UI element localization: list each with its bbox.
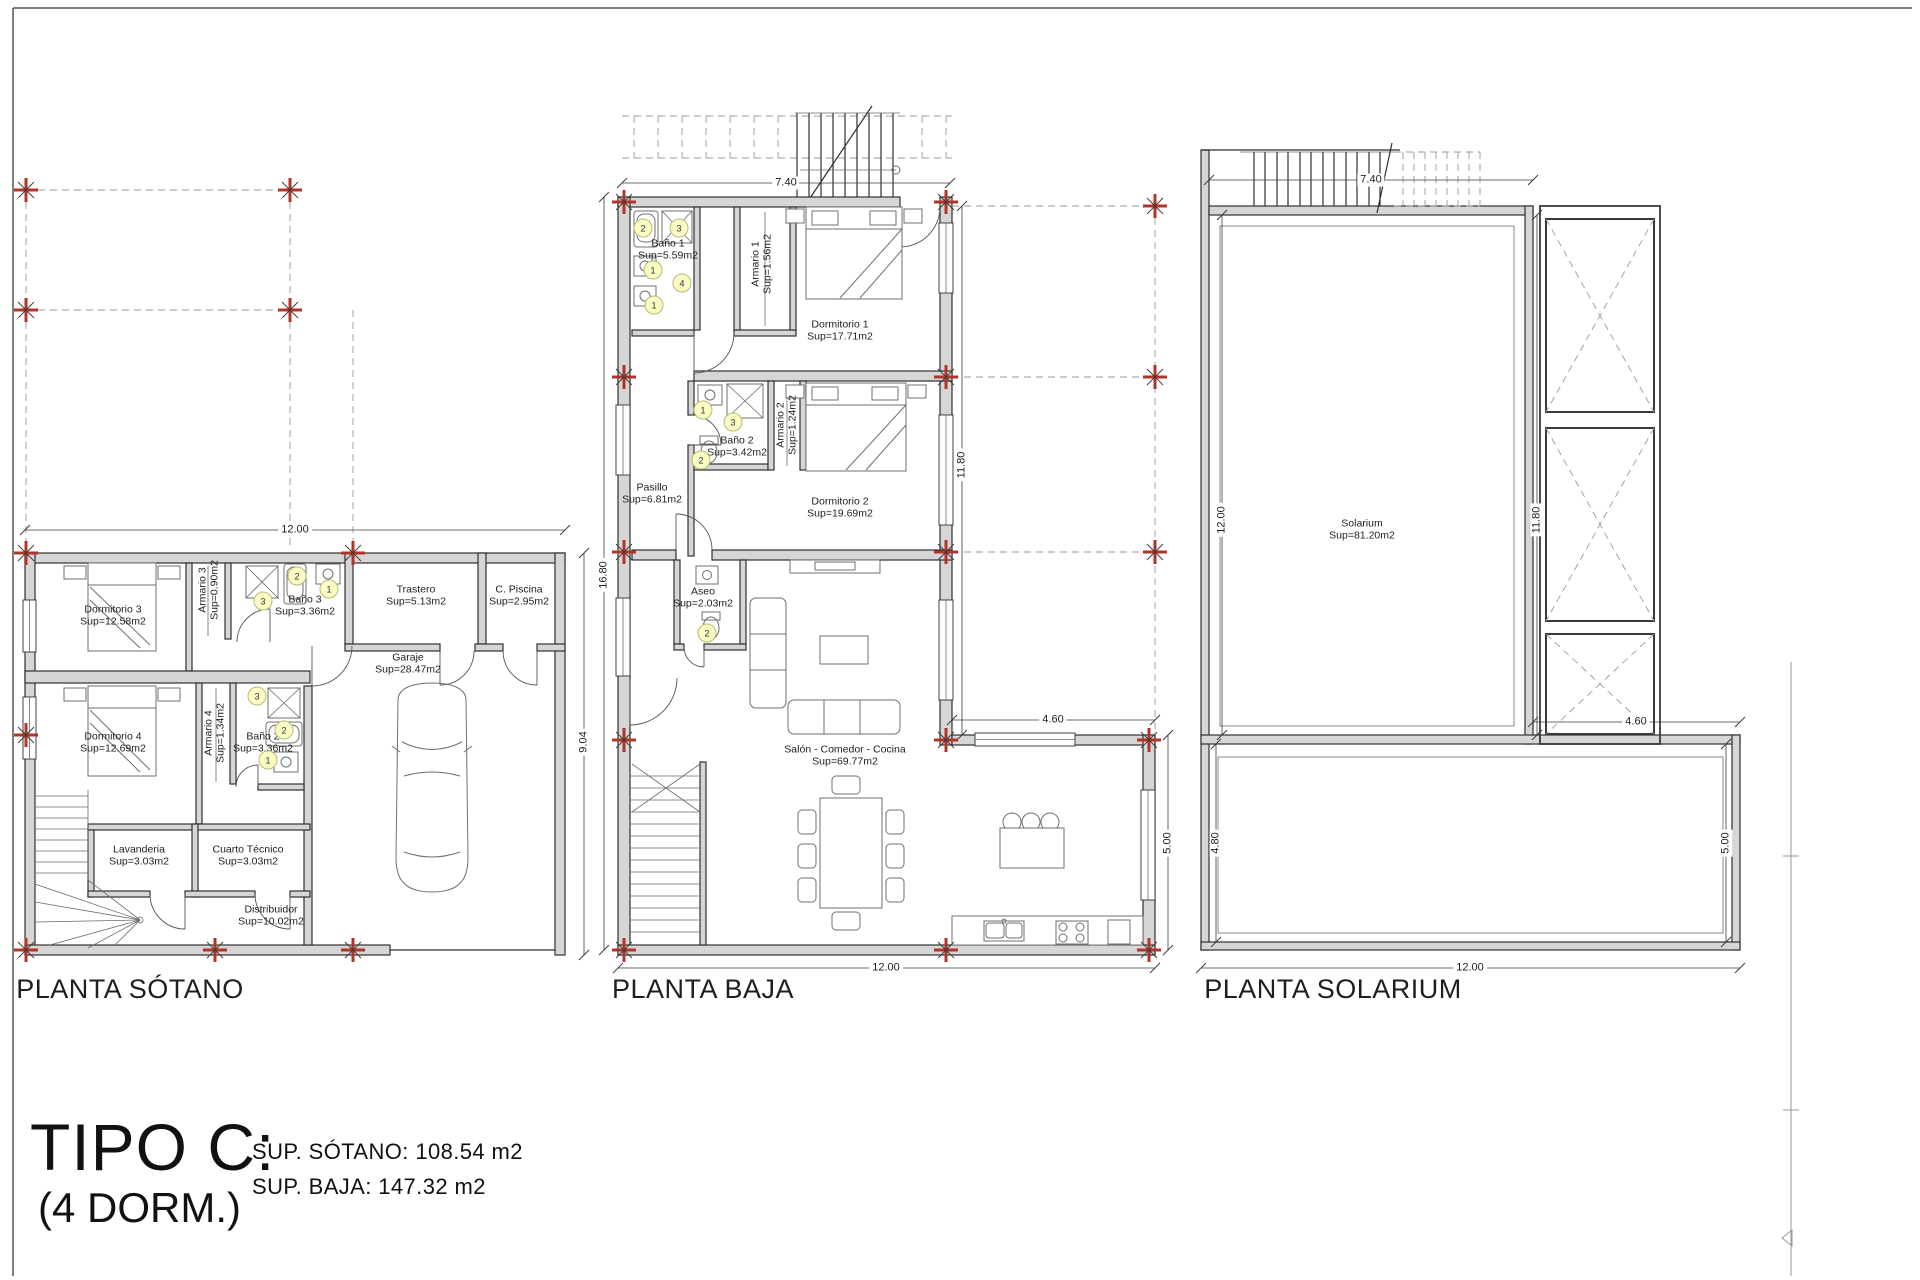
area-summary: SUP. SÓTANO: 108.54 m2 SUP. BAJA: 147.32… <box>252 1134 523 1204</box>
room-label: Armario 4 Sup=1.34m2 <box>203 703 228 763</box>
room-label: Aseo Sup=2.03m2 <box>673 586 733 611</box>
room-label: Lavanderia Sup=3.03m2 <box>109 844 169 869</box>
sotano-doors <box>150 609 537 929</box>
room-label: Garaje Sup=28.47m2 <box>375 652 441 677</box>
bed-dormitorio2 <box>786 383 926 471</box>
fixture-key: 3 <box>254 592 273 611</box>
fixture-key: 2 <box>288 567 307 586</box>
room-label: Armario 2 Sup=1.24m2 <box>775 395 800 455</box>
fixture-key: 2 <box>692 451 711 470</box>
dimension-label: 5.00 <box>1162 829 1175 856</box>
room-label: Dormitorio 1 Sup=17.71m2 <box>807 319 873 344</box>
room-label: Baño 1 Sup=5.59m2 <box>638 238 698 263</box>
kitchen-counter <box>952 916 1143 945</box>
room-label: Pasillo Sup=6.81m2 <box>622 482 682 507</box>
baja-stairs <box>630 764 700 932</box>
fixture-key: 3 <box>724 413 743 432</box>
dimension-label: 4.60 <box>1039 714 1066 727</box>
dimension-label: 12.00 <box>1216 503 1229 537</box>
fixture-key: 2 <box>634 219 653 238</box>
pergola-panels <box>1540 206 1660 744</box>
plan-solarium <box>1196 143 1745 973</box>
plans-drawing <box>0 0 1920 1280</box>
type-title: TIPO C: <box>30 1116 275 1179</box>
room-label: Salón - Comedor - Cocina Sup=69.77m2 <box>784 744 905 769</box>
room-label: Solarium Sup=81.20m2 <box>1329 518 1395 543</box>
dimension-label: 16.80 <box>598 558 611 592</box>
solarium-inner-line <box>1220 226 1514 726</box>
dimension-label: 4.80 <box>1210 829 1223 856</box>
dimension-label: 5.00 <box>1720 829 1733 856</box>
dimension-label: 11.80 <box>1531 504 1544 537</box>
room-label: Trastero Sup=5.13m2 <box>386 584 446 609</box>
room-label: Dormitorio 2 Sup=19.69m2 <box>807 496 873 521</box>
area-baja: SUP. BAJA: 147.32 m2 <box>252 1169 523 1204</box>
bed-dormitorio1 <box>786 207 922 299</box>
fixture-key: 3 <box>248 687 267 706</box>
dimension-label: 4.60 <box>1622 716 1649 729</box>
dining-set <box>798 776 904 930</box>
fixture-key: 1 <box>644 261 663 280</box>
area-sotano: SUP. SÓTANO: 108.54 m2 <box>252 1134 523 1169</box>
room-label: C. Piscina Sup=2.95m2 <box>489 584 549 609</box>
fixture-key: 4 <box>673 274 692 293</box>
plan-title-baja: PLANTA BAJA <box>612 974 794 1006</box>
overhang-dashed <box>952 206 1155 735</box>
fixture-key: 1 <box>259 751 278 770</box>
dimension-label: 12.00 <box>1453 962 1487 975</box>
plan-baja <box>599 106 1173 973</box>
floorplan-sheet: Dormitorio 3 Sup=12.58m2Armario 3 Sup=0.… <box>0 0 1920 1280</box>
room-label: Cuarto Técnico Sup=3.03m2 <box>212 844 283 869</box>
fixture-key: 3 <box>670 219 689 238</box>
dimension-label: 12.00 <box>869 962 903 975</box>
room-label: Dormitorio 3 Sup=12.58m2 <box>80 604 146 629</box>
room-label: Dormitorio 4 Sup=12.69m2 <box>80 731 146 756</box>
dimension-label: 7.40 <box>1357 174 1384 187</box>
room-label: Armario 3 Sup=0.90m2 <box>197 560 222 620</box>
terrace-inner-line <box>1218 757 1723 933</box>
plan-title-sotano: PLANTA SÓTANO <box>16 974 244 1006</box>
dimension-label: 9.04 <box>578 728 591 755</box>
room-label: Armario 1 Sup=1.56m2 <box>750 234 775 294</box>
type-subtitle: (4 DORM.) <box>38 1187 275 1229</box>
entry-stairs <box>795 106 900 204</box>
fixture-key: 2 <box>275 721 294 740</box>
kitchen-island <box>1000 813 1064 868</box>
projection-grid-dashed <box>26 190 353 548</box>
fixture-key: 1 <box>645 296 664 315</box>
plan-title-solarium: PLANTA SOLARIUM <box>1204 974 1462 1006</box>
fixture-key: 1 <box>320 580 339 599</box>
title-block: TIPO C: (4 DORM.) <box>30 1116 275 1229</box>
sheet-border <box>13 8 1912 1276</box>
entry-pergola-dashed <box>622 116 952 158</box>
room-label: Distribuidor Sup=10.02m2 <box>238 904 304 929</box>
living-furniture <box>750 560 900 734</box>
dimension-label: 7.40 <box>772 177 799 190</box>
room-label: Baño 2 Sup=3.42m2 <box>707 435 767 460</box>
dimension-label: 11.80 <box>956 449 969 482</box>
car-icon <box>392 683 472 892</box>
fixture-key: 2 <box>698 624 717 643</box>
fixture-key: 1 <box>694 401 713 420</box>
dimension-label: 12.00 <box>278 524 312 537</box>
